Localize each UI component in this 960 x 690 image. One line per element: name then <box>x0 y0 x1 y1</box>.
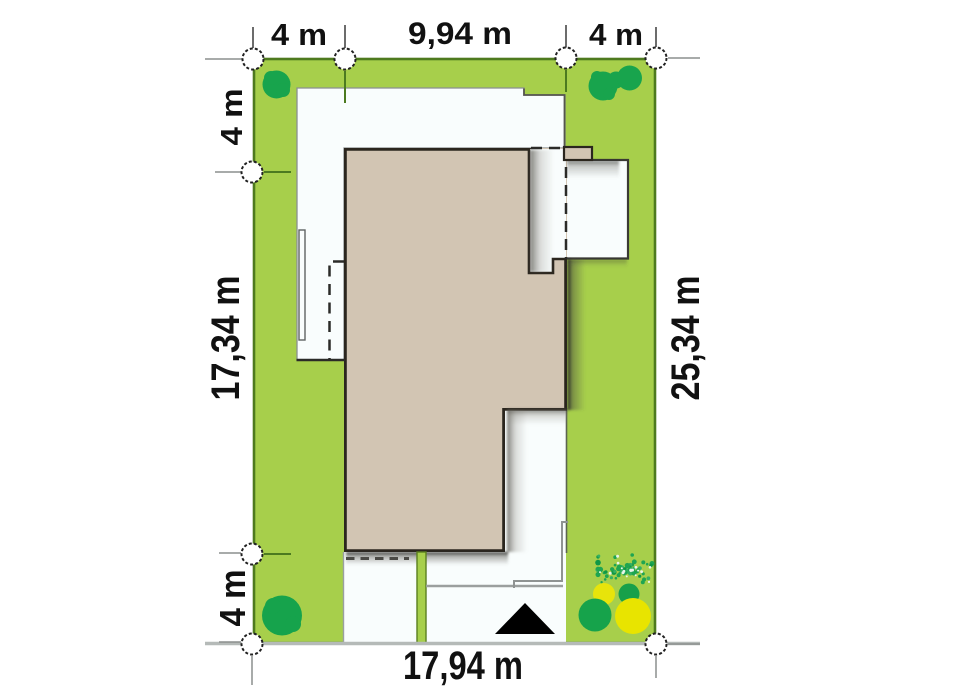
svg-text:4 m: 4 m <box>214 89 249 146</box>
svg-text:25,34 m: 25,34 m <box>664 276 708 401</box>
svg-text:17,34 m: 17,34 m <box>204 276 248 401</box>
svg-text:9,94 m: 9,94 m <box>408 15 512 51</box>
svg-text:4 m: 4 m <box>271 17 327 52</box>
svg-text:4 m: 4 m <box>212 570 253 627</box>
svg-text:4 m: 4 m <box>589 17 643 52</box>
svg-text:17,94 m: 17,94 m <box>403 644 523 688</box>
